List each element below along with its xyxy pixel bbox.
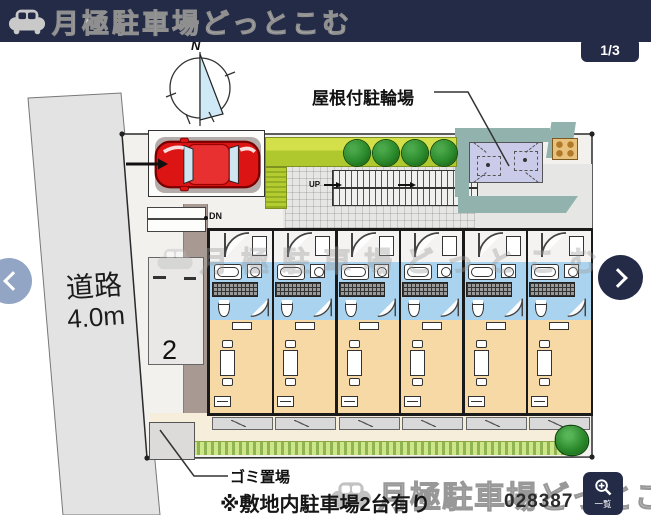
grass-strip [155, 441, 575, 455]
site-header[interactable]: 月極駐車場どっとこむ [0, 0, 651, 42]
tv-cabinet [531, 396, 548, 407]
toilet [345, 300, 357, 317]
balcony [212, 417, 273, 430]
toilet [472, 300, 484, 317]
tv-cabinet [214, 396, 231, 407]
chair [349, 378, 360, 386]
zoom-button-label: 一覧 [594, 498, 611, 510]
kitchen-counter [339, 282, 385, 297]
door-swing-icon [313, 298, 332, 317]
page-indicator: 1/3 [581, 38, 639, 62]
tree-icon [431, 140, 457, 166]
cabinet [549, 322, 569, 330]
tv-cabinet [341, 396, 358, 407]
table [474, 350, 489, 376]
chair [222, 340, 233, 348]
door-swing-icon [504, 298, 523, 317]
magnifier-plus-icon [594, 478, 613, 497]
tree-icon [344, 140, 370, 166]
chair [285, 340, 296, 348]
chair [412, 340, 423, 348]
tree-icon [402, 140, 428, 166]
watermark-middle: 月極駐車場どっとこむ [156, 240, 610, 280]
next-image-button[interactable] [598, 255, 643, 300]
bike-dash-mark [473, 142, 486, 153]
bike-rack-mark [477, 156, 501, 176]
tv-cabinet [468, 396, 485, 407]
door-swing-icon [377, 298, 396, 317]
bike-parking-label: 屋根付駐輪場 [312, 84, 414, 109]
chair [539, 340, 550, 348]
cabinet [422, 322, 442, 330]
chair [476, 340, 487, 348]
road-label: 道路 4.0m [48, 269, 142, 335]
garbage-label: ゴミ置場 [230, 466, 290, 487]
road-width: 4.0m [50, 300, 142, 335]
chevron-right-icon [608, 268, 628, 288]
stairs-down [147, 207, 206, 232]
parking-space-1 [148, 130, 265, 197]
chair [476, 378, 487, 386]
meter-box [552, 138, 578, 160]
cabinet [486, 322, 506, 330]
site-note: ※敷地内駐車場2台有り [220, 488, 431, 517]
watermark-text: 月極駐車場どっとこむ [200, 240, 610, 280]
stairs-up-label: UP [309, 180, 320, 189]
stairs-down-label: DN [209, 211, 222, 221]
shadow-band [455, 128, 550, 142]
red-car-icon [153, 136, 262, 193]
compass-icon: N [166, 38, 235, 126]
bike-dash-mark [525, 172, 538, 183]
balcony [402, 417, 463, 430]
kitchen-counter [275, 282, 321, 297]
table [347, 350, 362, 376]
plan-id-number: 028387 [504, 491, 573, 513]
cabinet [359, 322, 379, 330]
cabinet [295, 322, 315, 330]
covered-bicycle-parking [469, 142, 543, 183]
chair [412, 378, 423, 386]
table [537, 350, 552, 376]
chair [539, 378, 550, 386]
kitchen-counter [212, 282, 258, 297]
stairs-down-dot [204, 216, 208, 220]
bike-rack-mark [514, 151, 538, 171]
tree-icon [373, 140, 399, 166]
chevron-left-icon [3, 271, 23, 291]
door-swing-icon [250, 298, 269, 317]
previous-image-button[interactable] [0, 258, 32, 304]
cabinet [232, 322, 252, 330]
shadow-band [458, 196, 578, 213]
kitchen-counter [402, 282, 448, 297]
table [410, 350, 425, 376]
table [283, 350, 298, 376]
tv-cabinet [277, 396, 294, 407]
garbage-area [149, 422, 195, 460]
building-wall [207, 413, 593, 416]
chair [285, 378, 296, 386]
bush-icon [556, 426, 588, 455]
kitchen-counter [529, 282, 575, 297]
chair [349, 340, 360, 348]
balcony [339, 417, 400, 430]
shadow-band [455, 142, 469, 197]
parking-space-number: 2 [162, 335, 177, 366]
hedge [265, 167, 287, 209]
toilet [218, 300, 230, 317]
door-swing-icon [567, 298, 586, 317]
tv-cabinet [404, 396, 421, 407]
chair [222, 378, 233, 386]
kitchen-counter [466, 282, 512, 297]
table [220, 350, 235, 376]
watermark-car-icon [156, 247, 194, 273]
header-car-logo-icon [8, 7, 46, 35]
site-logo-text: 月極駐車場どっとこむ [52, 2, 352, 41]
zoom-list-button[interactable]: 一覧 [583, 472, 623, 515]
balcony [466, 417, 527, 430]
balcony [275, 417, 336, 430]
door-swing-icon [440, 298, 459, 317]
